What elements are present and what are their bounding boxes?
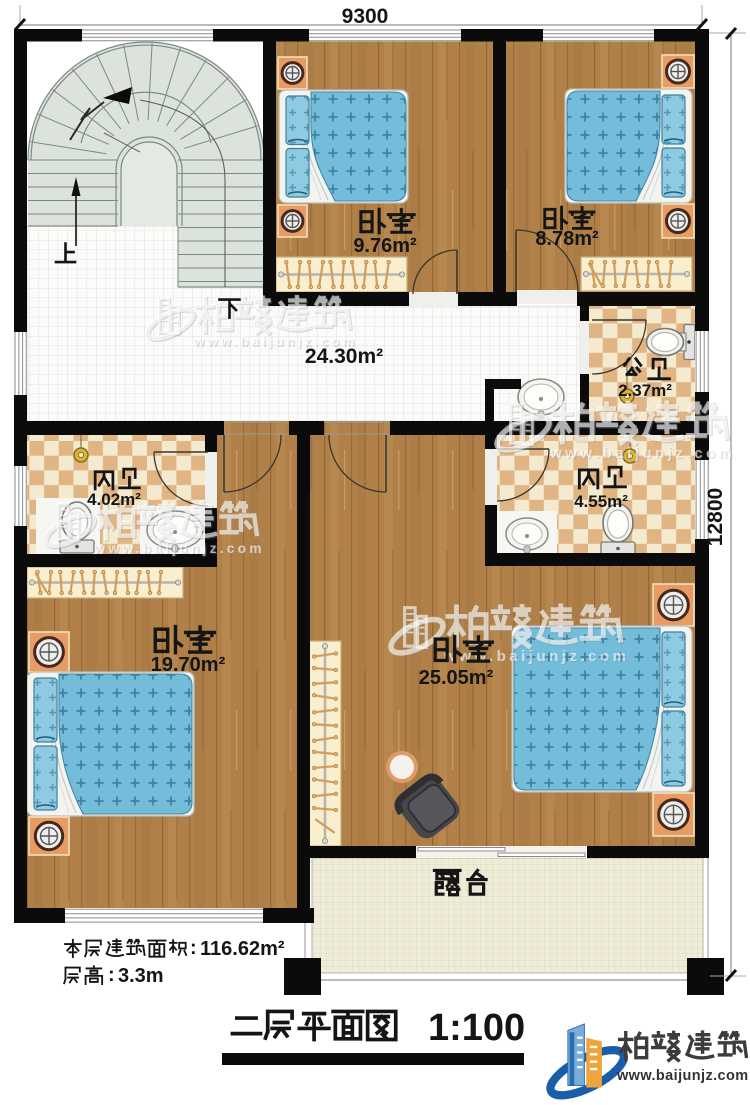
svg-text:9300: 9300	[342, 5, 389, 28]
svg-text:9.76m²: 9.76m²	[353, 235, 417, 257]
svg-text:www.baijunjz.com: www.baijunjz.com	[93, 541, 264, 556]
svg-text:www.baijunjz.com: www.baijunjz.com	[549, 445, 735, 462]
svg-text:www.baijunjz.com: www.baijunjz.com	[616, 1068, 749, 1084]
svg-text:24.30m²: 24.30m²	[305, 345, 383, 368]
svg-text:4.02m²: 4.02m²	[87, 490, 141, 509]
svg-text::: :	[190, 937, 197, 959]
svg-text:8.78m²: 8.78m²	[535, 228, 599, 250]
svg-text:3.3m: 3.3m	[118, 965, 164, 987]
svg-text:19.70m²: 19.70m²	[151, 654, 226, 676]
svg-text:4.55m²: 4.55m²	[574, 492, 628, 511]
svg-text::: :	[108, 964, 115, 986]
svg-text:2.37m²: 2.37m²	[618, 381, 672, 400]
svg-text:25.05m²: 25.05m²	[419, 667, 494, 689]
svg-text:116.62m²: 116.62m²	[200, 938, 285, 960]
svg-text:12800: 12800	[704, 488, 727, 546]
svg-text:1:100: 1:100	[428, 1007, 525, 1049]
